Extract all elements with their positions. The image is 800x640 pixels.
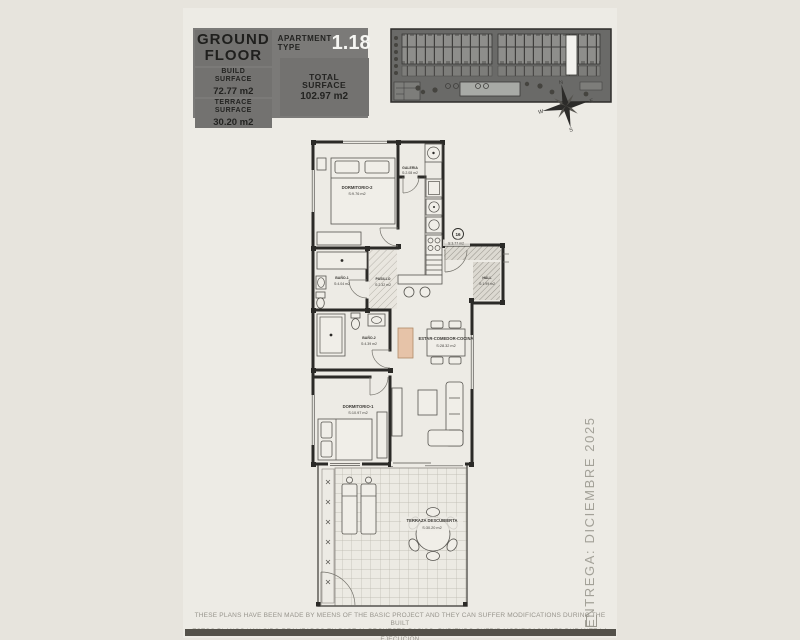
apartment-type-box: APARTMENT TYPE 1.18 — [278, 34, 371, 52]
kitchen-peninsula-icon — [398, 275, 442, 284]
title-block-right: APARTMENT TYPE 1.18 TOTAL SURFACE 102.97… — [274, 28, 375, 118]
total-surface-box: TOTAL SURFACE 102.97 m2 — [280, 58, 369, 116]
room-area: S:30.20 m2 — [422, 526, 441, 530]
washing-machine-icon — [425, 144, 442, 162]
bathroom2-fixtures — [317, 313, 385, 356]
entry-porch-floor — [444, 246, 501, 260]
build-surface-value: 72.77 m2 — [213, 86, 253, 97]
room-label: PASILLO — [376, 277, 391, 281]
room-area: S:4.04 m2 — [334, 282, 350, 286]
compass-s: S — [569, 127, 574, 132]
floor-plan-drawing: 16 S:3.77 m2 DORMITORIO-2 S:9.76 m2 GALE… — [285, 132, 511, 615]
room-label: ESTAR-COMEDOR-COCINA — [418, 336, 473, 341]
double-bed-icon — [318, 419, 372, 460]
total-surface-label: TOTAL SURFACE — [294, 73, 354, 89]
hall-floor — [473, 262, 500, 300]
dresser-icon — [317, 232, 361, 245]
room-label: BAÑO-1 — [335, 275, 348, 280]
developer-logo-icon — [586, 615, 597, 627]
room-label: TERRAZA DESCUBIERTA — [407, 518, 458, 523]
plan-sheet-page: GROUND FLOOR BUILD SURFACE 72.77 m2 TERR… — [0, 0, 800, 640]
room-area: S:2.08 m2 — [402, 171, 418, 175]
floor-title: GROUND FLOOR — [195, 30, 272, 66]
room-label: DORMITORIO-2 — [342, 185, 374, 190]
tv-unit-icon — [392, 388, 402, 436]
compass-e: E — [589, 98, 594, 105]
bottom-bar — [185, 629, 616, 636]
bedroom1-furniture — [318, 412, 387, 460]
shower-icon — [317, 314, 345, 356]
hob-icon — [426, 235, 442, 255]
double-bed-icon — [331, 158, 395, 224]
compass-w: W — [538, 109, 545, 116]
room-area: S:10.97 m2 — [348, 411, 367, 415]
shower-icon — [317, 252, 367, 269]
site-plan-pool — [460, 82, 520, 96]
washbasin-icon — [368, 314, 385, 326]
room-area: S:2.32 m2 — [375, 283, 391, 287]
bedroom2-furniture — [317, 158, 395, 245]
title-block-left: GROUND FLOOR BUILD SURFACE 72.77 m2 TERR… — [193, 28, 274, 118]
terrace-surface-value: 30.20 m2 — [213, 117, 253, 128]
room-label: HALL — [482, 276, 492, 280]
unit-number: 16 — [455, 232, 461, 237]
unit-number-badge: 16 — [453, 229, 464, 240]
room-area: S:1.99 m2 — [479, 282, 495, 286]
toilet-icon — [351, 313, 360, 329]
room-label: GALERIA — [402, 166, 418, 170]
build-surface-label: BUILD SURFACE — [203, 68, 263, 84]
dining-table-icon — [427, 321, 465, 364]
compass-icon: N E S W — [538, 80, 594, 132]
build-surface-box: BUILD SURFACE 72.77 m2 — [195, 68, 272, 97]
title-block: GROUND FLOOR BUILD SURFACE 72.77 m2 TERR… — [193, 28, 368, 118]
room-area: S:4.39 m2 — [361, 342, 377, 346]
kitchen-sink-icon — [426, 199, 442, 215]
coffee-table-icon — [418, 390, 437, 415]
delivery-date-note: ENTREGA: DICIEMBRE 2025 — [582, 376, 602, 628]
bar-stool-icon — [404, 287, 414, 297]
highlighted-unit — [566, 35, 577, 75]
wardrobe-icon — [377, 412, 387, 458]
disclaimer-line-en: THESE PLANS HAVE BEEN MADE BY MEENS OF T… — [185, 612, 615, 628]
kitchen-drawers-icon — [426, 255, 442, 275]
sun-lounger-icon — [361, 477, 376, 534]
total-surface-value: 102.97 m2 — [300, 91, 348, 102]
sideboard-icon — [398, 328, 413, 358]
washbasin-icon — [316, 276, 326, 289]
sun-lounger-icon — [342, 477, 357, 534]
oven-icon — [426, 217, 442, 233]
terrace-surface-label: TERRACE SURFACE — [203, 99, 263, 115]
room-label: BAÑO-2 — [362, 335, 375, 340]
room-label: DORMITORIO-1 — [343, 404, 375, 409]
fridge-icon — [426, 179, 442, 197]
nightstand-icon — [317, 158, 326, 170]
terrace-surface-box: TERRACE SURFACE 30.20 m2 — [195, 99, 272, 128]
room-area: S:9.76 m2 — [348, 192, 365, 196]
apartment-type-value: 1.18 — [332, 34, 371, 52]
entry-area-label: S:3.77 m2 — [448, 242, 464, 246]
room-area: S:28.32 m2 — [436, 344, 455, 348]
apartment-type-label: APARTMENT TYPE — [278, 34, 330, 52]
bar-stool-icon — [420, 287, 430, 297]
toilet-icon — [316, 292, 325, 308]
compass-n: N — [559, 80, 564, 86]
